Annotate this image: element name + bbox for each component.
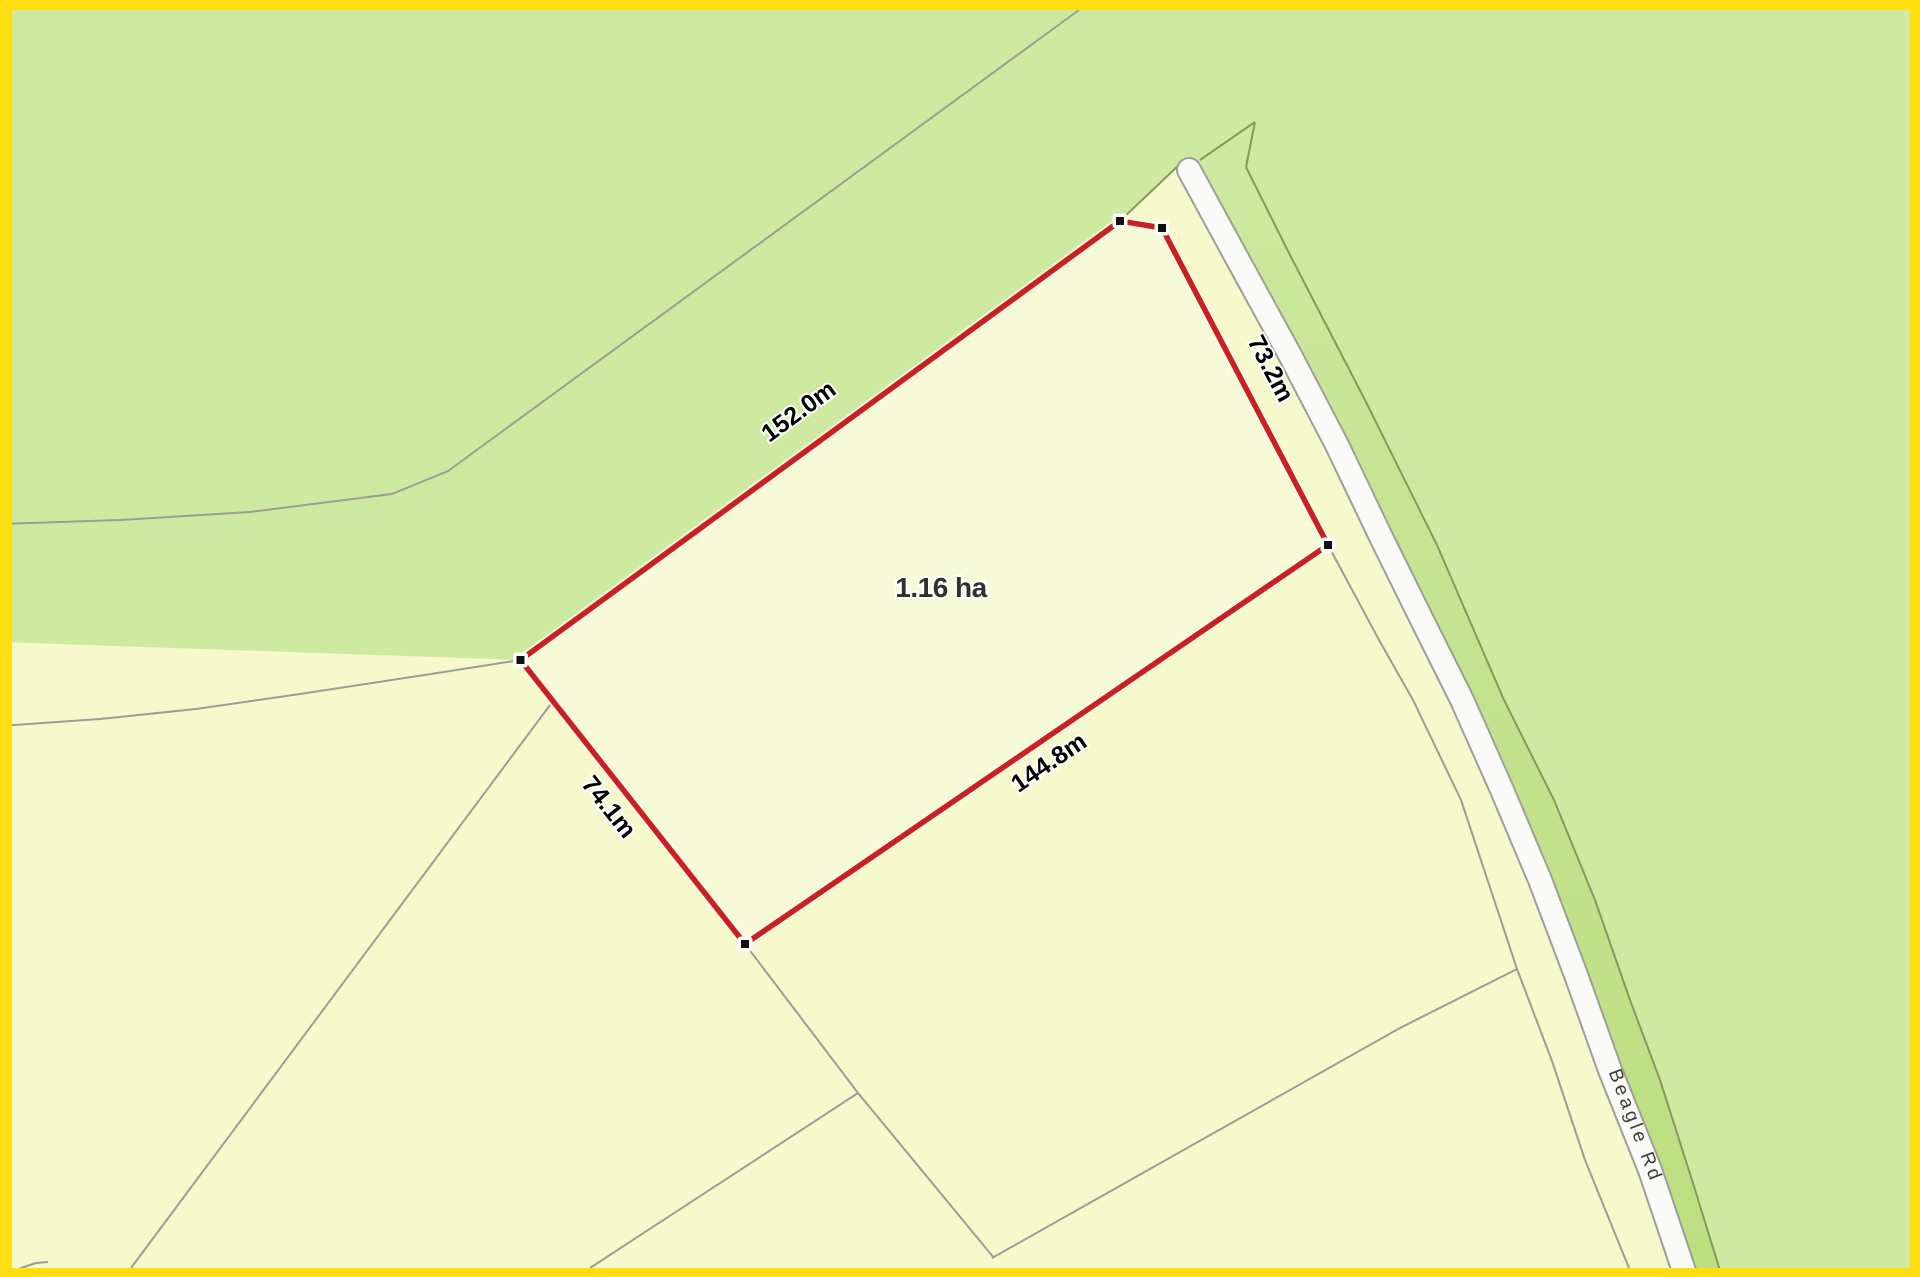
svg-text:1.16 ha: 1.16 ha <box>895 572 987 603</box>
